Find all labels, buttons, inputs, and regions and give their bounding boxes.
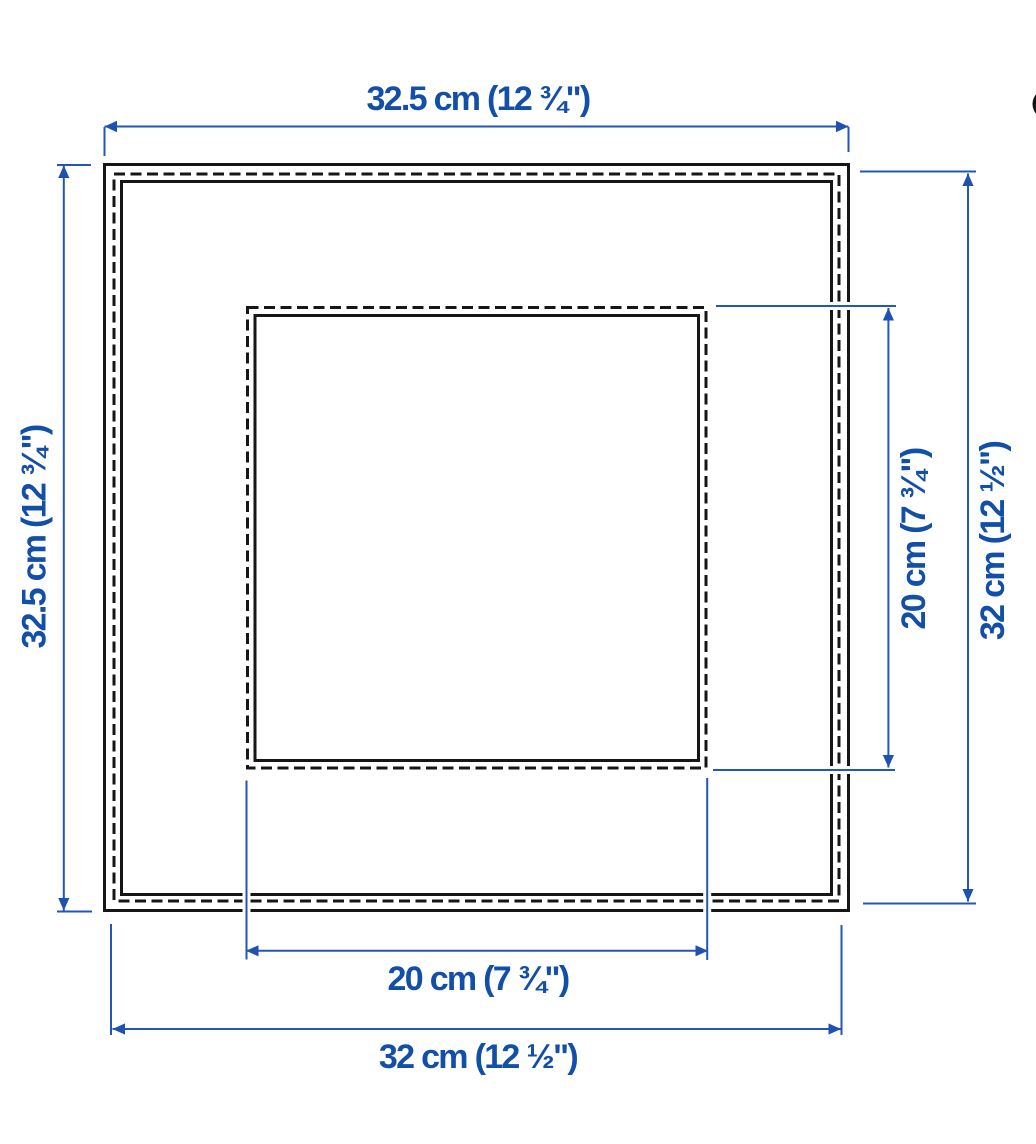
svg-text:20 cm (7 ¾"): 20 cm (7 ¾") (388, 960, 569, 998)
svg-text:32.5 cm (12 ¾"): 32.5 cm (12 ¾") (16, 425, 54, 648)
svg-text:20 cm (7 ¾"): 20 cm (7 ¾") (895, 448, 933, 629)
svg-text:32 cm (12 ½"): 32 cm (12 ½") (974, 442, 1012, 641)
svg-text:32.5 cm (12 ¾"): 32.5 cm (12 ¾") (366, 80, 589, 118)
svg-text:32 cm (12 ½"): 32 cm (12 ½") (379, 1038, 578, 1076)
